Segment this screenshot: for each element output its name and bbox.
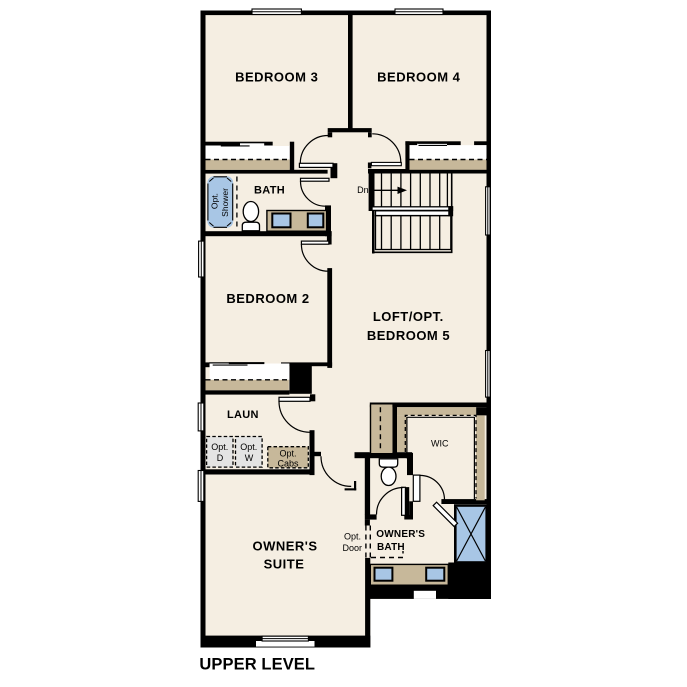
svg-text:Door: Door (343, 543, 363, 553)
svg-text:BEDROOM 5: BEDROOM 5 (367, 328, 450, 343)
svg-text:UPPER LEVEL: UPPER LEVEL (199, 656, 315, 674)
svg-text:Opt.: Opt. (211, 442, 228, 452)
svg-text:BEDROOM 4: BEDROOM 4 (377, 70, 461, 85)
svg-text:LOFT/OPT.: LOFT/OPT. (373, 309, 444, 324)
svg-text:Opt.: Opt. (210, 193, 220, 209)
svg-text:Opt.: Opt. (344, 531, 361, 541)
svg-text:W: W (245, 453, 254, 463)
svg-text:SUITE: SUITE (264, 557, 305, 572)
svg-text:BEDROOM 3: BEDROOM 3 (235, 70, 318, 85)
svg-text:Opt.: Opt. (240, 442, 257, 452)
svg-text:OWNER'S: OWNER'S (376, 529, 425, 540)
svg-text:Cabs: Cabs (277, 459, 299, 469)
svg-text:LAUN: LAUN (227, 409, 259, 421)
svg-text:D: D (217, 453, 224, 463)
svg-text:BEDROOM 2: BEDROOM 2 (226, 291, 309, 306)
svg-text:Shower: Shower (220, 188, 230, 217)
svg-text:Dn: Dn (357, 185, 369, 195)
svg-text:OWNER'S: OWNER'S (252, 539, 317, 554)
svg-text:BATH: BATH (254, 185, 285, 197)
svg-text:BATH: BATH (377, 542, 405, 553)
svg-text:Opt.: Opt. (279, 449, 296, 459)
svg-text:WIC: WIC (431, 438, 449, 448)
